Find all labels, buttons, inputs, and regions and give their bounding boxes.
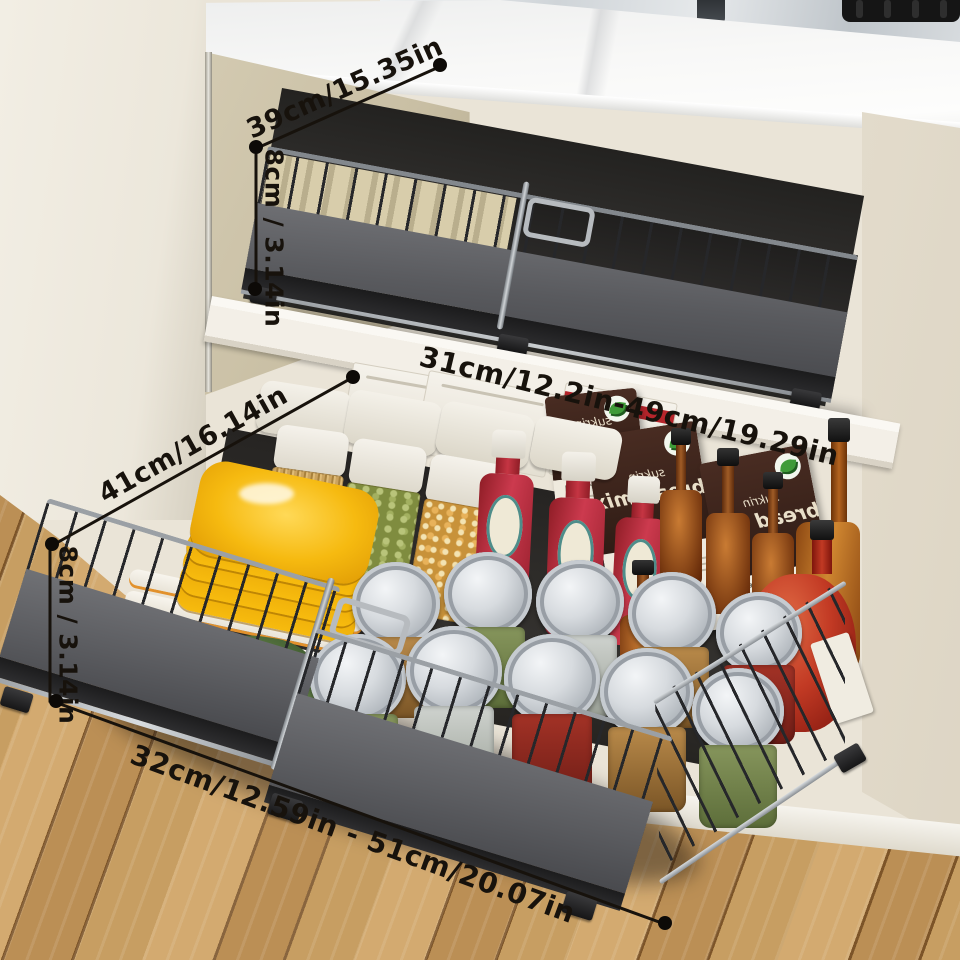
bottle-cap bbox=[763, 472, 783, 489]
dimension-dot bbox=[433, 58, 447, 72]
dimension-dot bbox=[248, 282, 262, 296]
bottle-label bbox=[485, 494, 524, 559]
dimension-dot bbox=[346, 370, 360, 384]
dimension-dot bbox=[658, 916, 672, 930]
stove-bar bbox=[884, 0, 891, 18]
bottle-cap bbox=[810, 520, 834, 540]
bottle-cap bbox=[561, 451, 597, 482]
plate-highlight bbox=[239, 484, 294, 505]
jar-lid bbox=[628, 572, 716, 656]
stove-bar bbox=[856, 0, 863, 18]
bottle-cap bbox=[717, 448, 738, 466]
dimension-label-drawer-height: 8cm / 3.14in bbox=[54, 546, 83, 703]
bottle-cap bbox=[491, 429, 526, 459]
jar-lid bbox=[536, 560, 624, 644]
stove-bar bbox=[912, 0, 919, 18]
bottle-cap bbox=[627, 475, 661, 504]
stove-grate bbox=[842, 0, 960, 22]
dimension-dot bbox=[49, 694, 63, 708]
dimension-line-top-height: 8cm / 3.14in bbox=[255, 149, 258, 290]
dimension-label-top-height: 8cm / 3.14in bbox=[260, 149, 289, 290]
amber-bottle bbox=[660, 428, 702, 586]
dimension-dot bbox=[45, 537, 59, 551]
dimension-line-drawer-height: 8cm / 3.14in bbox=[49, 546, 52, 703]
jar-lid bbox=[444, 552, 532, 636]
dimension-dot bbox=[249, 140, 263, 154]
product-photo-stage: MIX sukrin bread mix Sunflower Seed sukr… bbox=[0, 0, 960, 960]
stove-bar bbox=[940, 0, 947, 18]
